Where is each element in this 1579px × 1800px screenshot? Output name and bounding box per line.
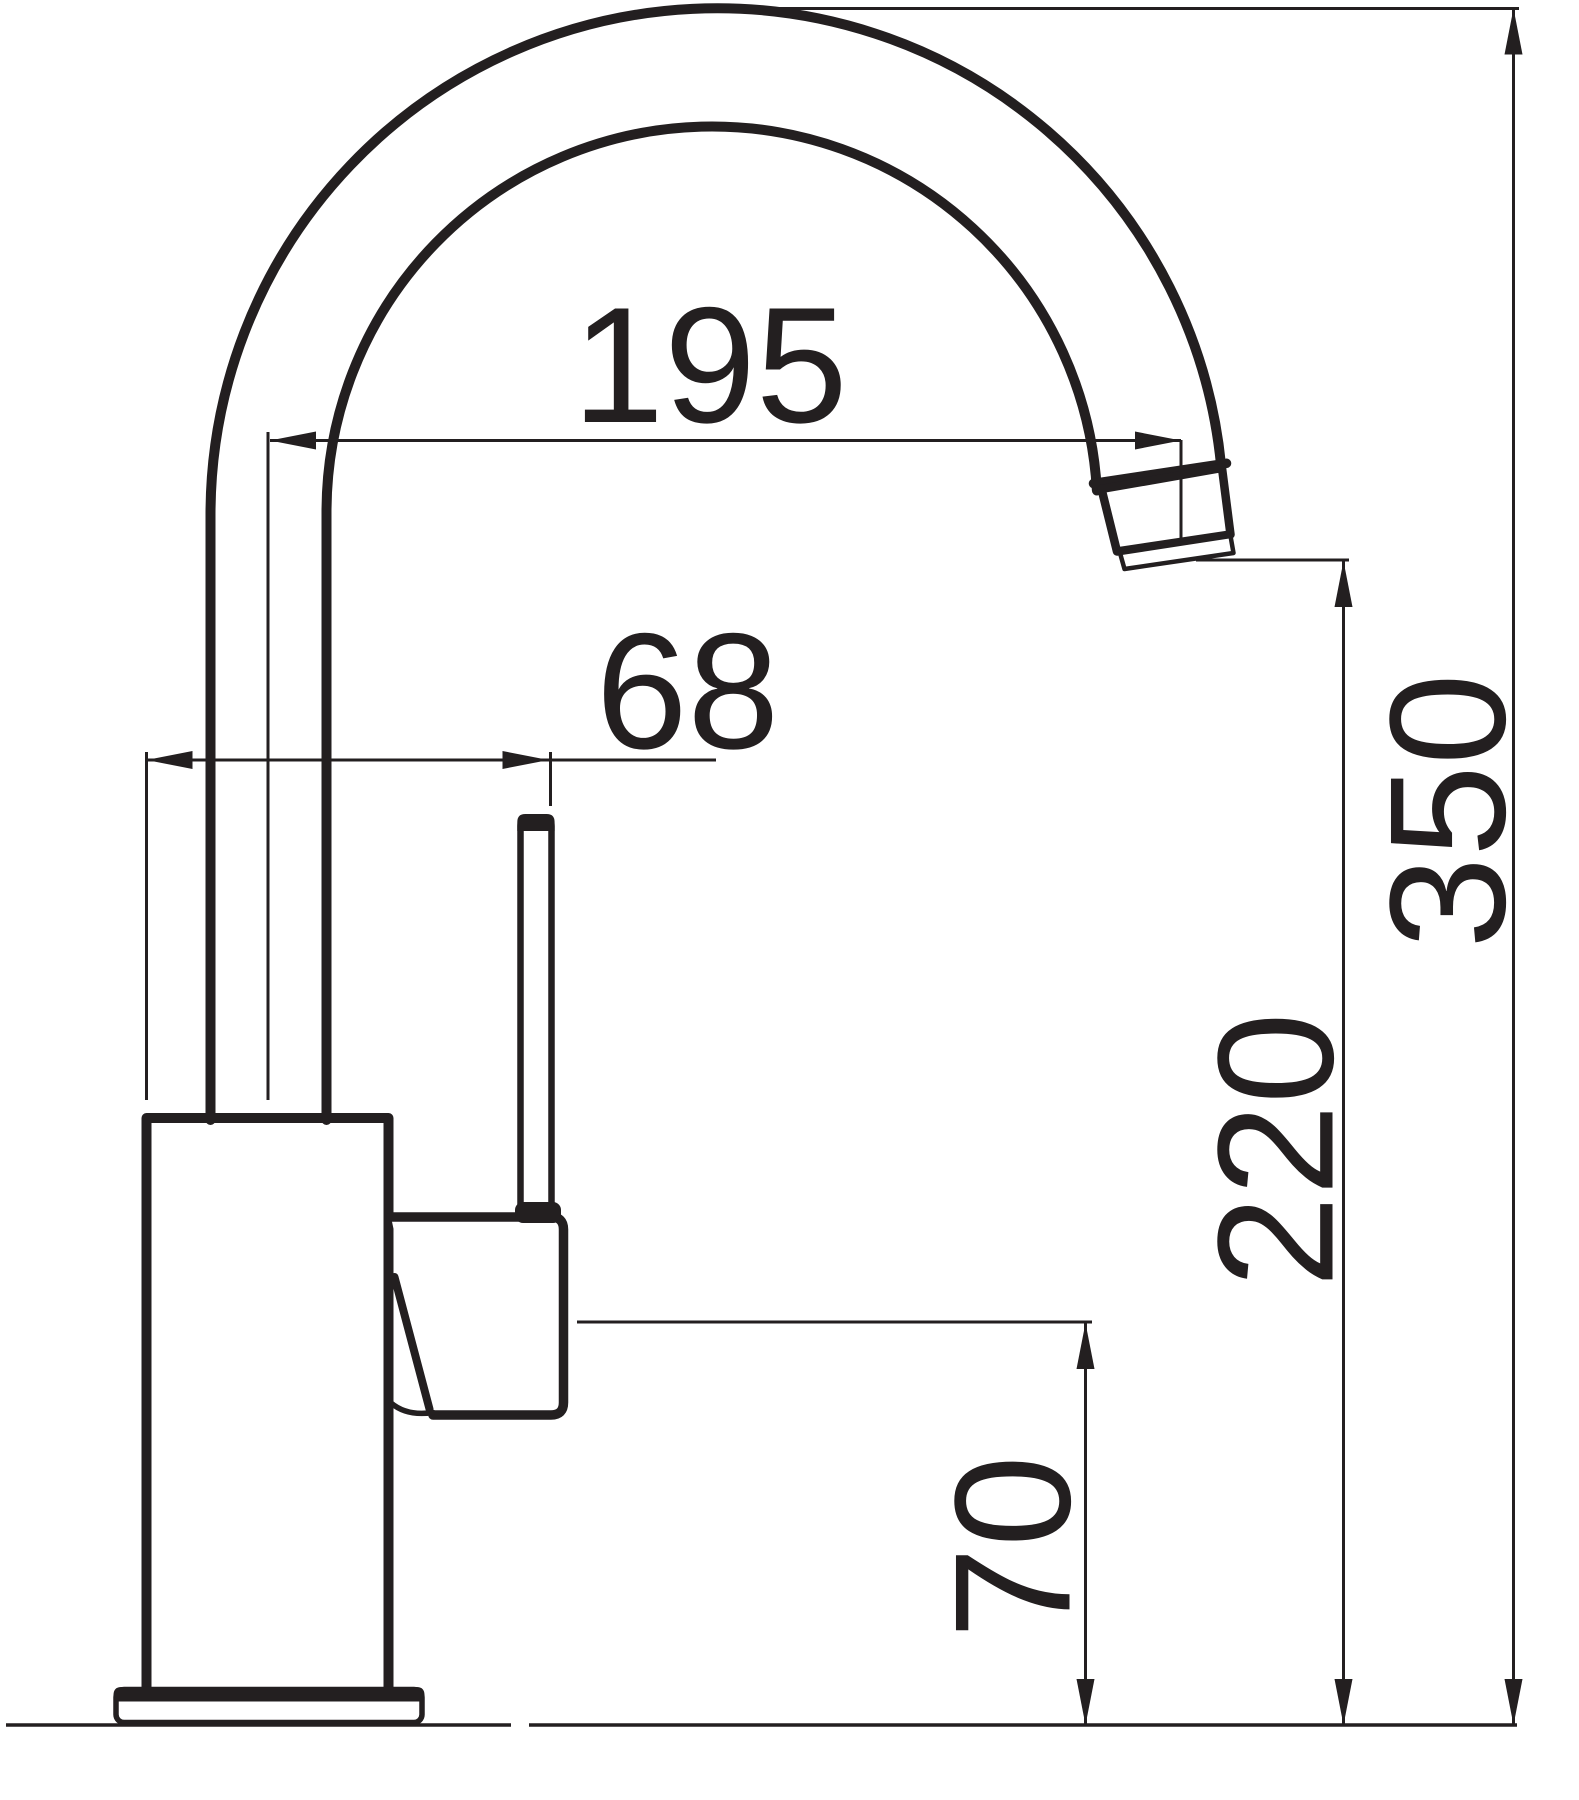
svg-text:70: 70 <box>921 1455 1105 1639</box>
svg-text:68: 68 <box>596 599 780 783</box>
svg-text:195: 195 <box>572 273 847 457</box>
svg-text:350: 350 <box>1356 673 1540 948</box>
svg-text:220: 220 <box>1184 1012 1368 1287</box>
